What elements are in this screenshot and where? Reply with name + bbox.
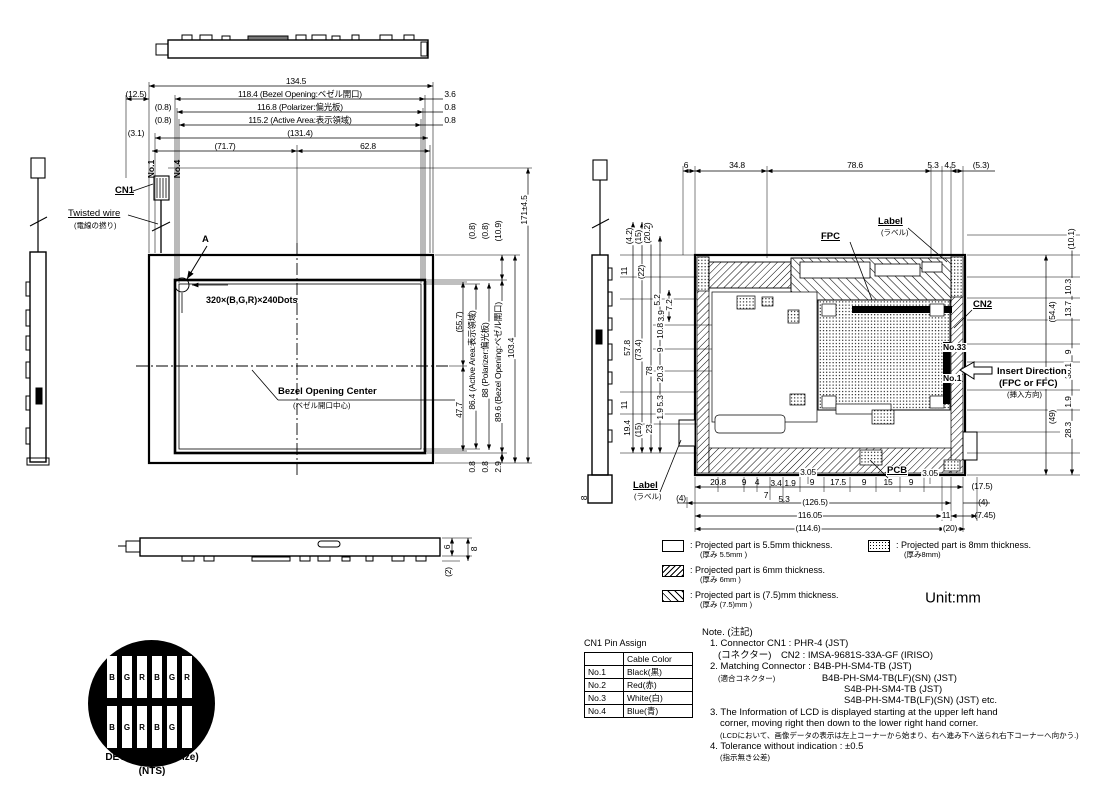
dim-label: 23 bbox=[645, 423, 654, 434]
dim-label: (54.4) bbox=[1048, 300, 1057, 323]
pin-cell: No.3 bbox=[585, 692, 624, 705]
dim-label: 11 bbox=[620, 266, 629, 276]
table-row: No.2 Red(赤) bbox=[585, 679, 693, 692]
dim-label: 118.4 (Bezel Opening:ベゼル開口) bbox=[238, 90, 362, 99]
dim-label: 13.7 bbox=[1064, 300, 1073, 318]
dim-label: 2.9 bbox=[494, 461, 503, 472]
note-line: S4B-PH-SM4-TB(LF)(SN) (JST) etc. bbox=[844, 695, 1079, 706]
legend-text: : Projected part is 6mm thickness. bbox=[690, 566, 825, 575]
dim-label: (12.5) bbox=[125, 90, 146, 99]
unit-label: Unit:mm bbox=[925, 590, 981, 607]
twisted-wire-label-jp: (電線の撚り) bbox=[74, 222, 117, 230]
twisted-wire-label: Twisted wire bbox=[68, 209, 120, 219]
dim-label: 5.3 bbox=[778, 495, 789, 504]
dim-label: 9 bbox=[1064, 349, 1073, 356]
color-cell: White(白) bbox=[624, 692, 693, 705]
note-line: 2. Matching Connector : B4B-PH-SM4-TB (J… bbox=[710, 661, 1079, 672]
legend-swatch-8mm bbox=[868, 540, 890, 552]
dim-label: (49) bbox=[1048, 409, 1057, 425]
dim-label: (73.4) bbox=[634, 338, 643, 361]
dim-label: 3.05 bbox=[799, 468, 817, 477]
dot-row-1: B G R B G R bbox=[107, 656, 192, 698]
mechanical-drawing-sheet: 134.5 (12.5) 118.4 (Bezel Opening:ベゼル開口)… bbox=[0, 0, 1093, 786]
label-tab-top-label-jp: (ラベル) bbox=[881, 229, 909, 237]
dim-label: 28.3 bbox=[1064, 421, 1073, 439]
dim-label: 78.6 bbox=[847, 161, 863, 170]
dot-r: R bbox=[137, 656, 147, 698]
dim-label: (0.8) bbox=[155, 116, 171, 125]
dim-label: 0.8 bbox=[444, 103, 455, 112]
legend-text-jp: (厚み 5.5mm ) bbox=[700, 551, 747, 559]
color-cell: Red(赤) bbox=[624, 679, 693, 692]
dim-label: 89.6 (Bezel Opening:ベゼル開口) bbox=[494, 301, 503, 423]
legend-text-jp: (厚み (7.5)mm ) bbox=[700, 601, 752, 609]
label-tab-top-label: Label bbox=[877, 217, 904, 227]
dim-label: 11 bbox=[620, 400, 629, 410]
dim-label: (131.4) bbox=[287, 129, 313, 138]
dim-label: 6 bbox=[684, 161, 689, 170]
dim-label: (71.7) bbox=[214, 142, 235, 151]
pin-no1-label: No.1 bbox=[147, 160, 156, 178]
dim-label: 116.8 (Polarizer:偏光板) bbox=[257, 103, 343, 112]
cn2-pin-no1-label: No.1 bbox=[942, 374, 962, 383]
dim-label: 88 (Polarizer:偏光板) bbox=[481, 321, 490, 398]
dim-label: 11 bbox=[941, 511, 951, 520]
side-view-left bbox=[26, 158, 49, 465]
note-line: 3. The Information of LCD is displayed s… bbox=[710, 707, 1079, 718]
dim-label: (15) bbox=[634, 422, 643, 438]
dim-label: 6 bbox=[443, 545, 452, 550]
dim-label: 17.5 bbox=[830, 478, 846, 487]
dim-label: (17.5) bbox=[971, 482, 992, 491]
note-line: (コネクター) CN2 : IMSA-9681S-33A-GF (IRISO) bbox=[718, 650, 1079, 661]
dot-r: R bbox=[182, 656, 192, 698]
pin-cell: No.2 bbox=[585, 679, 624, 692]
dim-label: 20.8 bbox=[710, 478, 726, 487]
note-line-jp: (指示無き公差) bbox=[720, 752, 1079, 763]
insert-direction-label: Insert Direction bbox=[996, 367, 1068, 377]
dim-label: 0.8 bbox=[468, 461, 477, 472]
column-header: Cable Color bbox=[624, 653, 693, 666]
dot-b: B bbox=[107, 656, 117, 698]
corner-cell bbox=[585, 653, 624, 666]
dim-label: (10.9) bbox=[494, 220, 503, 241]
dim-label: (55.7) bbox=[455, 311, 464, 332]
dim-label: 5.3 bbox=[927, 161, 938, 170]
dim-label: (20.2) bbox=[643, 221, 652, 244]
dim-label: 3.4 bbox=[770, 479, 781, 488]
dim-label: 7.2 bbox=[665, 298, 674, 311]
note-line: (適合コネクター) B4B-PH-SM4-TB(LF)(SN) (JST) bbox=[718, 673, 1079, 684]
note-line: 4. Tolerance without indication : ±0.5 bbox=[710, 741, 1079, 752]
legend-swatch-5_5mm bbox=[662, 540, 684, 552]
legend-text-jp: (厚み 6mm ) bbox=[700, 576, 741, 584]
dim-label: 171±4.5 bbox=[520, 194, 529, 225]
notes-block: Note. (注記) 1. Connector CN1 : PHR-4 (JST… bbox=[702, 627, 1079, 764]
note-line: corner, moving right then down to the lo… bbox=[720, 718, 1079, 729]
dim-label: 4 bbox=[755, 478, 760, 487]
dim-label: (126.5) bbox=[801, 498, 829, 507]
color-cell: Black(黒) bbox=[624, 666, 693, 679]
dim-label: (7.45) bbox=[974, 511, 995, 520]
dim-label: 3.6 bbox=[444, 90, 455, 99]
pin-cell: No.4 bbox=[585, 705, 624, 718]
dim-label: (5.3) bbox=[973, 161, 989, 170]
dim-label: 134.5 bbox=[286, 77, 306, 86]
legend-swatch-6mm bbox=[662, 565, 684, 577]
dim-label: 9 bbox=[810, 478, 815, 487]
pin-no4-label: No.4 bbox=[173, 160, 182, 178]
table-row: No.4 Blue(青) bbox=[585, 705, 693, 718]
dim-label: (0.8) bbox=[481, 223, 490, 239]
dim-label: 47.7 bbox=[455, 402, 464, 418]
dim-label: 78 bbox=[645, 365, 654, 376]
detail-a-callout: A bbox=[202, 235, 209, 245]
legend-text-jp: (厚み8mm) bbox=[904, 551, 941, 559]
dim-label: 115.2 (Active Area:表示領域) bbox=[248, 116, 351, 125]
bezel-opening-center-label: Bezel Opening Center bbox=[278, 387, 377, 397]
insert-direction-label2: (FPC or FFC) bbox=[998, 379, 1059, 389]
dim-label: 57.8 bbox=[623, 339, 632, 357]
table-row: No.3 White(白) bbox=[585, 692, 693, 705]
dot-g: G bbox=[167, 706, 177, 748]
legend-text: : Projected part is 8mm thickness. bbox=[896, 541, 1031, 550]
detail-a-dot-size: B G R B G R B G R B G bbox=[88, 640, 215, 767]
dim-label: 62.8 bbox=[360, 142, 376, 151]
dim-label: 4.5 bbox=[944, 161, 955, 170]
dim-label: 10.8 bbox=[656, 322, 665, 340]
dot-row-2: B G R B G bbox=[107, 706, 192, 748]
pcb-label: PCB bbox=[886, 466, 908, 476]
dim-label: 15 bbox=[883, 478, 892, 487]
legend-swatch-7_5mm bbox=[662, 590, 684, 602]
note-line-jp: (適合コネクター) bbox=[718, 674, 775, 683]
dim-label: 20.3 bbox=[656, 365, 665, 383]
dim-label: 3.05 bbox=[921, 469, 939, 478]
label-tab-bottom-label: Label bbox=[632, 481, 659, 491]
pin-table-title: CN1 Pin Assign bbox=[584, 638, 693, 648]
dim-label: 86.4 (Active Area:表示領域) bbox=[468, 309, 477, 410]
table-row: No.1 Black(黒) bbox=[585, 666, 693, 679]
dim-label: (22) bbox=[637, 264, 646, 280]
dim-label: 3.9 bbox=[657, 309, 666, 322]
dim-label: 9 bbox=[656, 347, 665, 354]
dim-label: 9 bbox=[862, 478, 867, 487]
dim-label: (0.8) bbox=[468, 223, 477, 239]
detail-title: DETAIL A (Dot Size) bbox=[105, 752, 198, 763]
fpc-label: FPC bbox=[820, 232, 841, 242]
table-header-row: Cable Color bbox=[585, 653, 693, 666]
dim-label: (4) bbox=[978, 498, 988, 507]
dim-label: (20) bbox=[942, 524, 958, 533]
resolution-label: 320×(B,G,R)×240Dots bbox=[206, 296, 298, 305]
detail-subtitle: (NTS) bbox=[139, 766, 166, 777]
insert-direction-label-jp: (挿入方向) bbox=[1007, 391, 1042, 399]
dim-label: 34.8 bbox=[729, 161, 745, 170]
dim-label: 5.2 bbox=[653, 293, 662, 306]
note-line: Note. (注記) bbox=[702, 627, 1079, 638]
bezel-opening-center-label-jp: (ベゼル開口中心) bbox=[293, 402, 351, 410]
note-line: 1. Connector CN1 : PHR-4 (JST) bbox=[710, 638, 1079, 649]
note-line: S4B-PH-SM4-TB (JST) bbox=[844, 684, 1079, 695]
dim-label: 1.9 bbox=[784, 479, 795, 488]
dim-label: 0.8 bbox=[481, 461, 490, 472]
dim-label: 8 bbox=[470, 547, 479, 552]
dim-label: 0.8 bbox=[444, 116, 455, 125]
cn2-label: CN2 bbox=[972, 300, 993, 310]
bottom-view bbox=[118, 538, 472, 561]
dot-g: G bbox=[122, 706, 132, 748]
note-line-part: B4B-PH-SM4-TB(LF)(SN) (JST) bbox=[822, 673, 957, 684]
dim-label: (0.8) bbox=[155, 103, 171, 112]
label-tab-bottom-label-jp: (ラベル) bbox=[634, 493, 662, 501]
dim-label: 1.9 bbox=[656, 407, 665, 420]
cn1-pin-assign-table: CN1 Pin Assign Cable Color No.1 Black(黒)… bbox=[584, 638, 693, 718]
dot-r: R bbox=[137, 706, 147, 748]
dim-label: 8 bbox=[580, 496, 589, 501]
dot-g: G bbox=[167, 656, 177, 698]
dim-label: 116.05 bbox=[797, 511, 823, 520]
dim-label: (10.1) bbox=[1067, 227, 1076, 250]
top-view bbox=[156, 35, 428, 58]
dim-label: 10.3 bbox=[1064, 278, 1073, 296]
legend-text: : Projected part is 5.5mm thickness. bbox=[690, 541, 833, 550]
cn2-pin-no33-label: No.33 bbox=[942, 343, 967, 352]
dot-blank bbox=[182, 706, 192, 748]
legend-text: : Projected part is (7.5)mm thickness. bbox=[690, 591, 839, 600]
dim-label: 1.9 bbox=[1064, 395, 1073, 408]
cn1-label: CN1 bbox=[115, 186, 134, 196]
dim-label: (114.6) bbox=[795, 524, 822, 533]
dot-b: B bbox=[152, 706, 162, 748]
dim-label: 7 bbox=[764, 491, 769, 500]
rear-view bbox=[660, 228, 992, 492]
dim-label: (2) bbox=[444, 567, 453, 577]
dim-label: (4) bbox=[676, 494, 686, 503]
side-view-rear bbox=[588, 160, 612, 503]
pin-cell: No.1 bbox=[585, 666, 624, 679]
dot-b: B bbox=[107, 706, 117, 748]
dim-label: 103.4 bbox=[507, 337, 516, 359]
note-line-jp: (LCDにおいて、画像データの表示は左上コーナーから始まり、右へ進み下へ送られ右… bbox=[720, 730, 1079, 741]
dim-label: 19.4 bbox=[623, 419, 632, 437]
dim-label: (3.1) bbox=[128, 129, 144, 138]
color-cell: Blue(青) bbox=[624, 705, 693, 718]
dim-label: 9 bbox=[909, 478, 914, 487]
dim-label: 5.3 bbox=[656, 394, 665, 407]
dim-label: 9 bbox=[742, 478, 747, 487]
dot-b: B bbox=[152, 656, 162, 698]
dot-g: G bbox=[122, 656, 132, 698]
